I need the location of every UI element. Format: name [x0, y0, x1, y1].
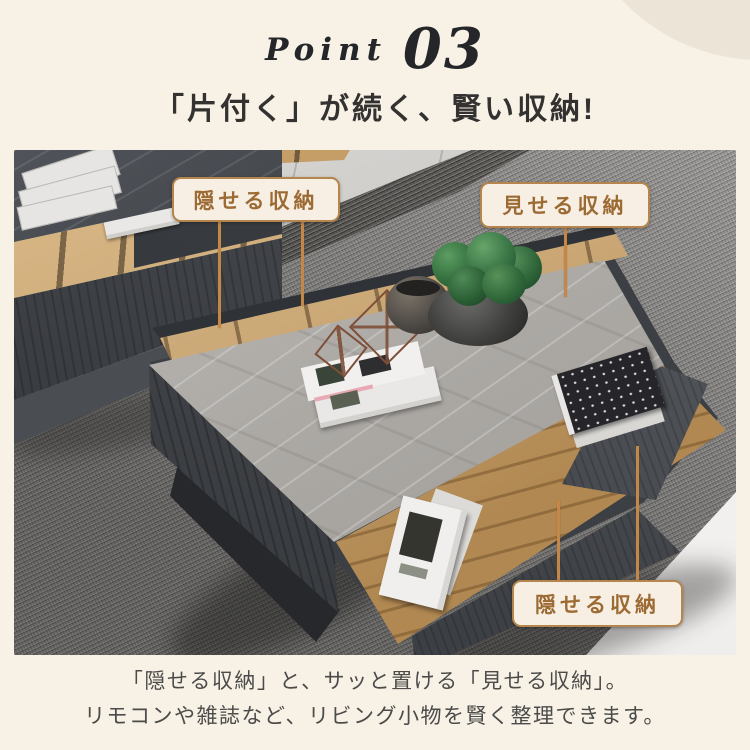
callout-line: [636, 446, 639, 582]
book-cover-art: [399, 563, 429, 579]
callout-label: 見せる収納: [503, 190, 628, 220]
plant-foliage: [482, 264, 526, 304]
callout-show: 見せる収納: [480, 182, 650, 228]
callout-label: 隠せる収納: [535, 589, 660, 619]
point-number: 03: [403, 16, 485, 82]
callout-line: [218, 220, 221, 328]
callout-line: [564, 226, 567, 297]
callout-line: [557, 500, 560, 582]
magazine-stack: [18, 152, 128, 228]
point-header: Point03: [0, 16, 750, 82]
book-cover-art: [399, 512, 443, 563]
callout-hide-bottom: 隠せる収納: [512, 580, 683, 627]
vase-opening: [396, 280, 440, 296]
caption-line-2: リモコンや雑誌など、リビング小物を賢く整理できます。: [84, 705, 666, 728]
callout-line: [301, 220, 304, 306]
caption: 「隠せる収納」と、サッと置ける「見せる収納」。 リモコンや雑誌など、リビング小物…: [0, 664, 750, 734]
callout-label: 隠せる収納: [194, 185, 319, 215]
product-photo: 隠せる収納 見せる収納 隠せる収納: [14, 150, 736, 655]
callout-hide-top: 隠せる収納: [172, 177, 340, 222]
page-heading: 「片付く」が続く、賢い収納!: [0, 84, 750, 128]
point-label: Point: [265, 32, 387, 68]
page: Point03 「片付く」が続く、賢い収納!: [0, 0, 750, 750]
caption-line-1: 「隠せる収納」と、サッと置ける「見せる収納」。: [122, 670, 628, 693]
